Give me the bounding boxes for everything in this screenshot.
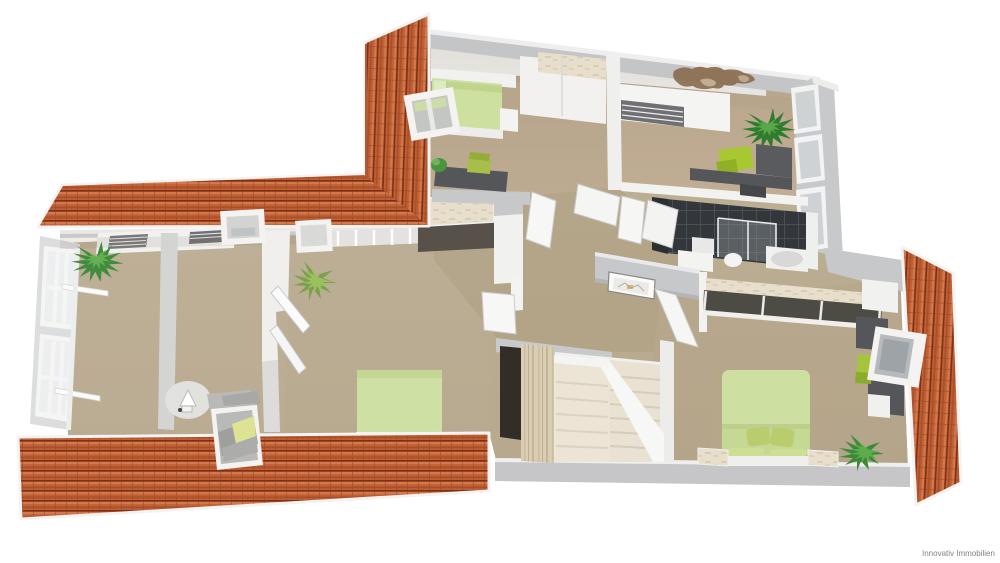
svg-text:Innovativ Immobilien: Innovativ Immobilien (922, 549, 995, 558)
